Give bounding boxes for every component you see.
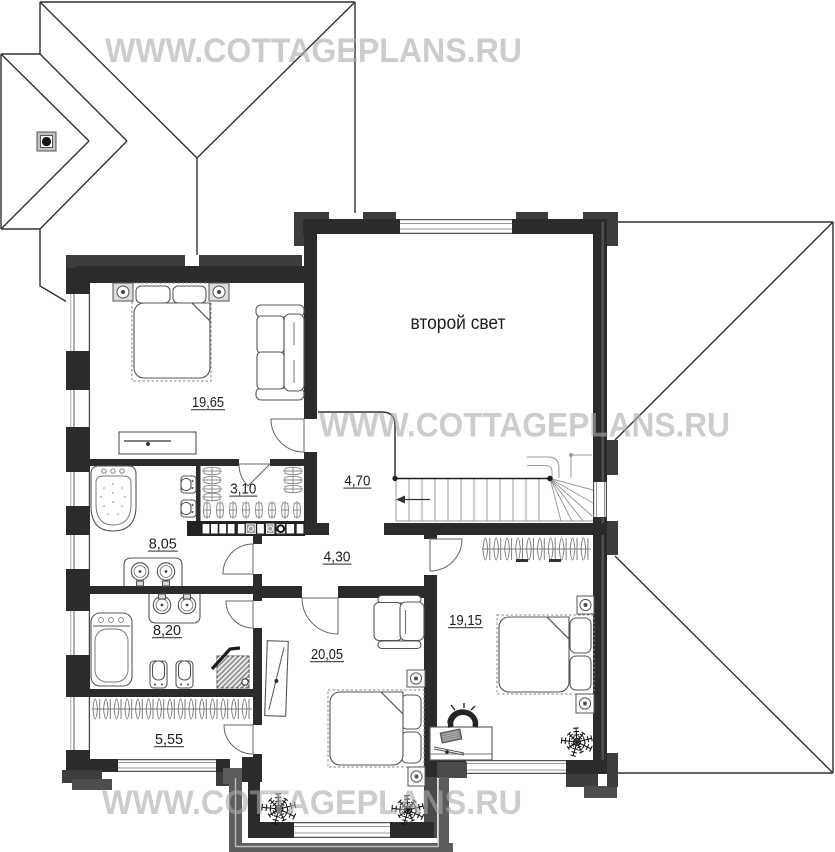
svg-text:3,10: 3,10: [230, 481, 256, 498]
svg-text:19,15: 19,15: [449, 612, 482, 629]
svg-text:20,05: 20,05: [311, 646, 343, 663]
svg-text:WWW.COTTAGEPLANS.RU: WWW.COTTAGEPLANS.RU: [105, 32, 522, 70]
svg-text:8,05: 8,05: [149, 536, 177, 553]
svg-text:второй свет: второй свет: [411, 313, 506, 334]
svg-text:4,70: 4,70: [344, 473, 370, 490]
svg-text:5,55: 5,55: [155, 731, 183, 748]
svg-text:19,65: 19,65: [192, 394, 224, 411]
svg-text:WWW.COTTAGEPLANS.RU: WWW.COTTAGEPLANS.RU: [102, 784, 522, 822]
svg-text:8,20: 8,20: [153, 622, 181, 639]
svg-text:WWW.COTTAGEPLANS.RU: WWW.COTTAGEPLANS.RU: [319, 407, 730, 445]
svg-text:4,30: 4,30: [324, 549, 351, 566]
